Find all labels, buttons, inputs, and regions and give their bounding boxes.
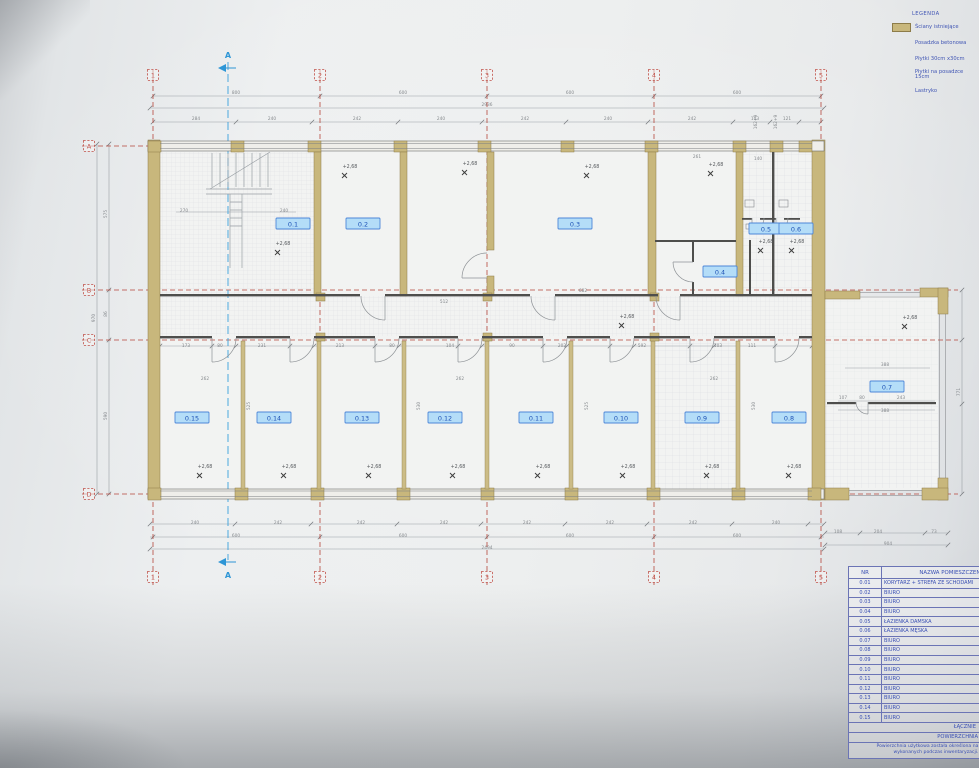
room-name-cell: BIURO	[882, 674, 979, 684]
dim-text: 270	[180, 208, 188, 214]
room-name-cell: BIURO	[882, 665, 979, 675]
table-row: 0.08BIURO	[849, 646, 979, 656]
table-row: 0.03BIURO	[849, 598, 979, 608]
dim-text: 242	[357, 520, 365, 526]
legend-item-label: Ściany istniejące	[915, 25, 959, 30]
legend-spacer	[892, 39, 911, 48]
table-row: 0.10BIURO	[849, 665, 979, 675]
table-row: 0.04BIURO	[849, 607, 979, 617]
dim-text: 600	[733, 533, 741, 539]
dim-text: 592	[638, 343, 646, 349]
dim-text: 240	[604, 116, 612, 122]
room-number-cell: 0.03	[849, 598, 882, 608]
table-row: 0.15BIURO	[849, 713, 979, 723]
legend-item: Posadzka betonowa	[892, 39, 979, 47]
section-label: A	[225, 51, 232, 60]
dim-text: 173	[182, 343, 190, 349]
table-row: 0.01KORYTARZ + STREFA ZE SCHODAMI	[849, 579, 979, 589]
room-label-0.5: 0.5	[761, 226, 771, 234]
room-number-cell: 0.06	[849, 626, 882, 636]
room-label-0.4: 0.4	[715, 269, 725, 277]
level-benchmark-dot	[368, 475, 370, 477]
room-name-cell: ŁAZIENKA MĘSKA	[882, 626, 979, 636]
grid-marker-label: 2	[318, 573, 322, 581]
dim-text: 107	[839, 395, 847, 401]
dim-text: 388	[881, 408, 889, 414]
level-benchmark-dot	[710, 173, 712, 175]
legend-spacer	[892, 87, 911, 96]
level-value: +2,68	[585, 164, 600, 170]
level-value: +2,68	[620, 314, 635, 320]
legend-item-label: Płytki 30cm x30cm	[915, 57, 965, 62]
room-number-cell: 0.04	[849, 607, 882, 617]
room-number-cell: 0.01	[849, 579, 882, 589]
level-value: +2,68	[282, 464, 297, 470]
table-row: 0.07BIURO	[849, 636, 979, 646]
dim-text: 80	[389, 343, 395, 349]
room-name-cell: ŁAZIENKA DAMSKA	[882, 617, 979, 627]
dim-text: 204	[874, 529, 882, 535]
schedule-col-name: NAZWA POMIESZCZENIA	[882, 567, 979, 579]
grid-marker-label: 3	[485, 573, 489, 581]
grid-marker-label: D	[86, 490, 91, 498]
photographed-floor-plan-sheet: { "legend": { "title": "LEGENDA", "items…	[0, 0, 979, 768]
level-value: +2,68	[787, 464, 802, 470]
room-number-cell: 0.05	[849, 617, 882, 627]
legend: LEGENDA Ściany istniejącePosadzka betono…	[892, 12, 979, 103]
dim-text: 600	[399, 90, 407, 96]
room-name-cell: BIURO	[882, 713, 979, 723]
dim-text: 262	[201, 376, 209, 382]
grid-marker-label: 4	[652, 573, 656, 581]
tiled-floor-corridor	[160, 296, 812, 336]
schedule-note-line1: Powierzchnia użytkowa została określona …	[876, 744, 979, 749]
level-benchmark-dot	[904, 326, 906, 328]
dim-text: 86	[103, 311, 109, 317]
dim-text: 771	[956, 388, 962, 396]
level-value: +2,68	[198, 464, 213, 470]
room-name-cell: BIURO	[882, 684, 979, 694]
table-row: 0.09BIURO	[849, 655, 979, 665]
grid-marker-label: 5	[819, 71, 823, 79]
legend-item: Płytki 30cm x30cm	[892, 55, 979, 63]
dim-text: 240	[268, 116, 276, 122]
room-label-0.3: 0.3	[570, 221, 580, 229]
dim-text: 80	[859, 395, 865, 401]
dim-text: 2494	[482, 545, 493, 551]
room-number-cell: 0.09	[849, 655, 882, 665]
dim-text: 904	[884, 541, 892, 547]
legend-title: LEGENDA	[912, 12, 979, 17]
dim-text: 111	[748, 343, 756, 349]
room-name-cell: BIURO	[882, 655, 979, 665]
legend-item-label: Płytki na posadzce 15cm	[915, 70, 979, 80]
room-number-cell: 0.11	[849, 674, 882, 684]
room-label-0.12: 0.12	[438, 415, 452, 423]
room-number-cell: 0.07	[849, 636, 882, 646]
room-label-0.14: 0.14	[267, 415, 281, 423]
dim-text: 800	[232, 90, 240, 96]
room-label-0.15: 0.15	[185, 415, 199, 423]
level-benchmark-dot	[537, 475, 539, 477]
grid-marker-label: 3	[485, 71, 489, 79]
wall-left	[148, 140, 160, 498]
level-benchmark-dot	[344, 175, 346, 177]
level-benchmark-dot	[452, 475, 454, 477]
level-value: +2,68	[463, 161, 478, 167]
room-schedule: NR NAZWA POMIESZCZENIA 0.01KORYTARZ + ST…	[848, 566, 979, 759]
dim-text: 162+9	[773, 114, 779, 129]
room-label-0.7: 0.7	[882, 384, 892, 392]
room-name-cell: BIURO	[882, 703, 979, 713]
dim-text: 512	[440, 299, 448, 305]
level-benchmark-dot	[791, 250, 793, 252]
table-row: 0.02BIURO	[849, 588, 979, 598]
wall-right	[812, 140, 825, 500]
dim-text: 242	[440, 520, 448, 526]
dim-text: 525	[246, 402, 252, 410]
dim-text: 242	[606, 520, 614, 526]
level-benchmark-dot	[464, 172, 466, 174]
schedule-area-label: POWIERZCHNIA UŻYTKOWA	[849, 732, 979, 742]
dim-text: 262	[710, 376, 718, 382]
room-label-0.1: 0.1	[288, 221, 298, 229]
dim-text: 242	[274, 520, 282, 526]
grid-marker-label: 2	[318, 71, 322, 79]
level-benchmark-dot	[706, 475, 708, 477]
level-value: +2,68	[705, 464, 720, 470]
level-value: +2,68	[451, 464, 466, 470]
level-benchmark-dot	[621, 325, 623, 327]
table-row: 0.13BIURO	[849, 694, 979, 704]
room-name-cell: BIURO	[882, 588, 979, 598]
dim-text: 575	[103, 210, 109, 218]
room-label-0.6: 0.6	[791, 226, 801, 234]
room-label-0.8: 0.8	[784, 415, 794, 423]
section-arrow-bottom-icon	[218, 558, 226, 566]
room-label-0.2: 0.2	[358, 221, 368, 229]
level-value: +2,68	[536, 464, 551, 470]
level-value: +2,68	[343, 164, 358, 170]
legend-item: Lastryko	[892, 87, 979, 95]
legend-item-label: Posadzka betonowa	[915, 41, 966, 46]
dim-text: 261	[693, 154, 701, 160]
dim-text: 600	[733, 90, 741, 96]
dim-text: 73	[931, 529, 937, 535]
dim-text: 388	[881, 362, 889, 368]
dim-text: 682	[579, 288, 587, 294]
schedule-header-row: NR NAZWA POMIESZCZENIA	[849, 567, 979, 579]
dim-text: 162+9	[753, 114, 759, 129]
room-name-cell: BIURO	[882, 646, 979, 656]
level-benchmark-dot	[283, 475, 285, 477]
table-row: 0.06ŁAZIENKA MĘSKA	[849, 626, 979, 636]
existing-wall-swatch	[892, 23, 911, 32]
dim-text: 242	[523, 520, 531, 526]
room-label-0.11: 0.11	[529, 415, 543, 423]
dim-text: 242	[689, 520, 697, 526]
grid-marker-label: 1	[151, 71, 155, 79]
grid-marker-label: 5	[819, 573, 823, 581]
level-benchmark-dot	[760, 250, 762, 252]
grid-marker-label: 1	[151, 573, 155, 581]
dim-text: 525	[584, 402, 590, 410]
level-value: +2,68	[759, 239, 774, 245]
dim-text: 90	[509, 343, 515, 349]
dim-text: 104	[446, 343, 454, 349]
table-row: 0.11BIURO	[849, 674, 979, 684]
dim-text: 231	[258, 343, 266, 349]
dim-text: 242	[521, 116, 529, 122]
level-value: +2,68	[367, 464, 382, 470]
grid-marker-label: C	[87, 336, 92, 344]
grid-marker-label: B	[87, 286, 91, 294]
table-row: 0.05ŁAZIENKA DAMSKA	[849, 617, 979, 627]
level-value: +2,68	[790, 239, 805, 245]
dim-text: 108	[834, 529, 842, 535]
level-value: +2,68	[621, 464, 636, 470]
dim-text: 530	[751, 402, 757, 410]
tiled-floor-annex-lower	[825, 404, 938, 488]
level-benchmark-dot	[622, 475, 624, 477]
section-arrow-top-icon	[218, 64, 226, 72]
room-number-cell: 0.15	[849, 713, 882, 723]
dim-text: 240	[437, 116, 445, 122]
room-number-cell: 0.12	[849, 684, 882, 694]
dim-text: 240	[772, 520, 780, 526]
legend-item: Ściany istniejące	[892, 23, 979, 31]
room-number-cell: 0.13	[849, 694, 882, 704]
table-row: 0.14BIURO	[849, 703, 979, 713]
dim-text: 121	[783, 116, 791, 122]
legend-spacer	[892, 55, 911, 64]
level-benchmark-dot	[788, 475, 790, 477]
dim-text: 600	[566, 533, 574, 539]
dim-text: 530	[416, 402, 422, 410]
dim-text: 240	[191, 520, 199, 526]
schedule-col-nr: NR	[849, 567, 882, 579]
dim-text: 240	[280, 208, 288, 214]
room-number-cell: 0.08	[849, 646, 882, 656]
dim-text: 242	[353, 116, 361, 122]
dim-text: 242	[688, 116, 696, 122]
room-label-0.9: 0.9	[697, 415, 707, 423]
room-name-cell: BIURO	[882, 636, 979, 646]
dim-text: 600	[399, 533, 407, 539]
level-benchmark-dot	[586, 175, 588, 177]
level-value: +2,68	[276, 241, 291, 247]
level-benchmark-dot	[277, 252, 279, 254]
dim-text: 600	[566, 90, 574, 96]
level-value: +2,68	[709, 162, 724, 168]
dim-text: 284	[192, 116, 200, 122]
schedule-note-row: Powierzchnia użytkowa została określona …	[849, 742, 979, 758]
grid-marker-label: 4	[652, 71, 656, 79]
table-row: 0.12BIURO	[849, 684, 979, 694]
dim-text: 243	[897, 395, 905, 401]
room-number-cell: 0.02	[849, 588, 882, 598]
legend-item: Płytki na posadzce 15cm	[892, 71, 979, 79]
room-label-0.10: 0.10	[614, 415, 628, 423]
dim-text: 2936	[482, 102, 493, 108]
dim-text: 213	[336, 343, 344, 349]
dim-text: 202	[558, 343, 566, 349]
legend-spacer	[892, 71, 911, 80]
dim-text: 80	[217, 343, 223, 349]
room-name-cell: KORYTARZ + STREFA ZE SCHODAMI	[882, 579, 979, 589]
room-name-cell: BIURO	[882, 694, 979, 704]
room-number-cell: 0.14	[849, 703, 882, 713]
dim-text: 590	[103, 412, 109, 420]
dim-text: 600	[232, 533, 240, 539]
dim-text: 103	[714, 343, 722, 349]
schedule-total-row: ŁĄCZNIE	[849, 722, 979, 732]
room-label-0.13: 0.13	[355, 415, 369, 423]
room-number-cell: 0.10	[849, 665, 882, 675]
schedule-note-line2: wykonanych podczas inwentaryzacji.	[894, 750, 979, 755]
grid-marker-label: A	[87, 142, 92, 150]
room-name-cell: BIURO	[882, 598, 979, 608]
section-label: A	[225, 571, 232, 580]
room-name-cell: BIURO	[882, 607, 979, 617]
floor-plan-drawing: 1122334455ABCD 0.10.20.30.40.50.60.70.80…	[0, 0, 979, 768]
dim-text: 970	[91, 314, 97, 322]
dim-text: 140	[754, 156, 762, 162]
schedule-area-row: POWIERZCHNIA UŻYTKOWA	[849, 732, 979, 742]
schedule-total-label: ŁĄCZNIE	[849, 722, 979, 732]
dim-text: 262	[456, 376, 464, 382]
level-benchmark-dot	[199, 475, 201, 477]
level-value: +2,68	[903, 315, 918, 321]
legend-item-label: Lastryko	[915, 89, 937, 94]
